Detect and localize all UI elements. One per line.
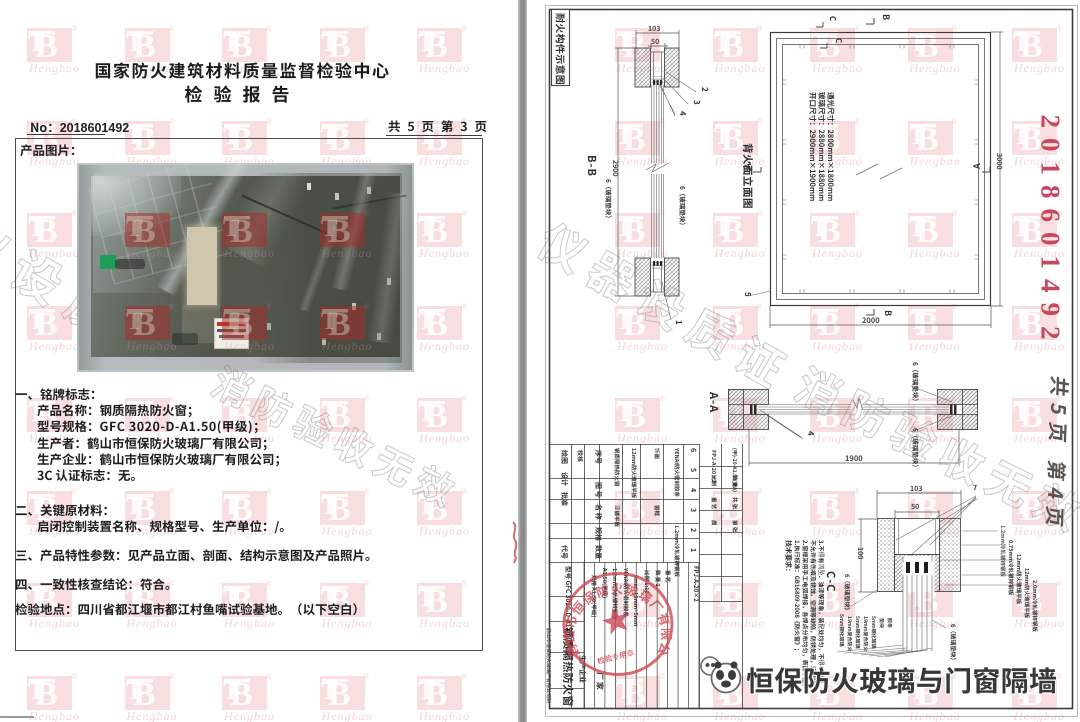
svg-text:亚镀平板: 亚镀平板: [613, 505, 621, 528]
svg-text:1.2mm冷轧镀锌钢板: 1.2mm冷轧镀锌钢板: [999, 525, 1007, 577]
svg-text:1.2mm冷轧镀锌钢板: 1.2mm冷轧镀锌钢板: [673, 525, 681, 577]
svg-text:6（玻璃垫块）: 6（玻璃垫块）: [843, 574, 852, 614]
svg-text:2900: 2900: [610, 160, 620, 177]
svg-text:12mm防火玻璃平板: 12mm防火玻璃平板: [1015, 554, 1023, 605]
svg-text:垫块: 垫块: [878, 618, 885, 628]
svg-text:3: 3: [691, 100, 702, 105]
svg-text:0.75mm冷轧镀锌钢板: 0.75mm冷轧镀锌钢板: [1007, 540, 1015, 596]
svg-text:数 量: 数 量: [731, 475, 739, 488]
svg-text:C: C: [827, 16, 838, 22]
svg-text:4: 4: [688, 488, 698, 492]
svg-text:耐火构件示意图: 耐火构件示意图: [554, 13, 569, 85]
svg-text:C: C: [833, 38, 844, 44]
svg-text:饰面: 饰面: [653, 448, 661, 460]
svg-text:设计: 设计: [559, 472, 569, 486]
svg-text:重 艺: 重 艺: [664, 570, 672, 583]
svg-text:规格: 规格: [593, 527, 603, 541]
svg-text:1.执行标准：GB16809-2008《防火窗》；: 1.执行标准：GB16809-2008《防火窗》；: [793, 540, 802, 654]
svg-text:鹤山市恒保防火玻璃厂有限公司制: 鹤山市恒保防火玻璃厂有限公司制: [545, 628, 552, 703]
svg-text:50: 50: [911, 502, 919, 512]
svg-text:批准: 批准: [559, 492, 569, 506]
svg-text:5mm钢化玻璃: 5mm钢化玻璃: [854, 616, 861, 649]
svg-text:2.0mm冷轧镀锌钢板: 2.0mm冷轧镀锌钢板: [1031, 580, 1039, 632]
svg-text:12mm防火玻璃平板: 12mm防火玻璃平板: [630, 448, 638, 499]
svg-text:4: 4: [805, 431, 816, 436]
svg-text:B-B: B-B: [584, 155, 600, 177]
svg-text:A: A: [970, 163, 983, 170]
svg-text:4: 4: [677, 111, 688, 116]
svg-text:质: 质: [710, 520, 718, 526]
svg-text:序号: 序号: [593, 450, 603, 464]
svg-text:名 称: 名 称: [593, 504, 603, 520]
svg-text:B: B: [882, 310, 895, 316]
svg-text:19mm复合防火: 19mm复合防火: [862, 616, 869, 652]
svg-text:103: 103: [910, 484, 922, 494]
svg-text:2: 2: [688, 528, 698, 532]
svg-text:比例: 比例: [710, 475, 718, 487]
svg-text:5mm钢化玻璃: 5mm钢化玻璃: [870, 616, 877, 649]
svg-text:窗框: 窗框: [653, 505, 661, 517]
svg-text:6（玻璃垫块）: 6（玻璃垫块）: [678, 186, 688, 229]
svg-text:2000: 2000: [862, 315, 880, 326]
svg-text:6（玻璃垫块）: 6（玻璃垫块）: [604, 179, 614, 222]
svg-text:B: B: [880, 14, 893, 20]
svg-text:2: 2: [699, 87, 710, 92]
svg-text:检验专用章: 检验专用章: [596, 647, 636, 667]
svg-text:背火面立面图: 背火面立面图: [740, 143, 755, 209]
svg-text:5: 5: [688, 468, 698, 472]
svg-text:第 张: 第 张: [731, 520, 739, 533]
svg-text:重 艺: 重 艺: [710, 497, 718, 510]
svg-text:共 张: 共 张: [731, 497, 739, 510]
svg-text:12mm防火玻璃平板: 12mm防火玻璃平板: [1023, 568, 1031, 619]
svg-text:开口尺寸：2900mm×1900mm: 开口尺寸：2900mm×1900mm: [807, 92, 818, 201]
svg-text:1: 1: [688, 548, 698, 552]
svg-text:FPJ-A-20×2: FPJ-A-20×2: [692, 566, 701, 602]
svg-text:绘图: 绘图: [559, 450, 569, 464]
svg-text:技术要求：: 技术要求：: [783, 540, 793, 575]
svg-text:校核: 校核: [576, 450, 585, 462]
svg-text:6: 6: [688, 448, 698, 452]
svg-text:A-A: A-A: [706, 391, 722, 413]
svg-text:5: 5: [742, 292, 753, 297]
svg-text:50: 50: [651, 37, 659, 47]
svg-text:代号: 代号: [559, 545, 569, 559]
svg-text:A: A: [741, 163, 754, 170]
svg-text:19mm复合防火: 19mm复合防火: [846, 616, 853, 652]
svg-text:1900: 1900: [845, 453, 863, 464]
svg-text:图 号: 图 号: [593, 482, 603, 498]
svg-text:103: 103: [648, 24, 660, 34]
svg-text:钢质隔热防火窗: 钢质隔热防火窗: [613, 448, 621, 487]
svg-text:6（玻璃垫块）: 6（玻璃垫块）: [949, 624, 958, 664]
svg-text:厂 家: 厂 家: [594, 672, 605, 690]
svg-text:3000: 3000: [994, 153, 1004, 170]
svg-text:5mm钢化玻璃: 5mm钢化玻璃: [838, 614, 845, 647]
svg-text:数 量 1: 数 量 1: [654, 570, 662, 587]
svg-text:100: 100: [855, 547, 865, 559]
svg-text:3: 3: [688, 508, 698, 512]
svg-text:YENAI防火密封胶条: YENAI防火密封胶条: [673, 447, 681, 498]
svg-text:数量: 数量: [593, 545, 603, 559]
svg-text:胶条: 胶条: [886, 618, 893, 628]
